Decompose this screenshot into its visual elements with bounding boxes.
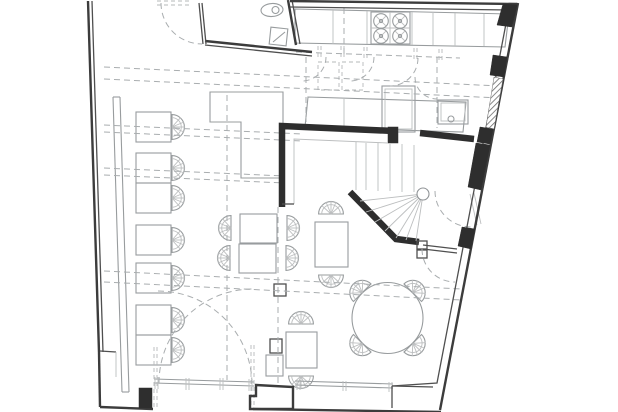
cabinet-swing-arc <box>350 57 374 81</box>
wc-sink <box>269 27 288 46</box>
wall-table <box>136 263 171 293</box>
chair-icon <box>344 335 371 362</box>
chair-icon <box>287 216 300 241</box>
wall-table <box>136 153 171 183</box>
wall-pier <box>139 388 152 408</box>
door-jamb <box>388 127 398 143</box>
kitchen <box>385 89 412 129</box>
window-jamb <box>477 127 493 144</box>
chair-icon <box>172 186 185 211</box>
center-table <box>286 332 317 368</box>
chair-icon <box>344 275 371 302</box>
appliance-outline <box>342 62 363 90</box>
storefront-glazing <box>154 383 254 386</box>
appliance-outline <box>318 62 339 90</box>
beam-line <box>104 168 285 176</box>
beam-line <box>104 79 499 98</box>
exterior-walls <box>99 352 100 407</box>
wall-table <box>136 305 171 335</box>
stair-wall <box>282 126 394 207</box>
storefront <box>154 289 393 410</box>
wall-table <box>136 225 171 255</box>
beam-line <box>104 67 499 86</box>
stair-wall <box>420 133 474 139</box>
wall-pier <box>250 385 293 409</box>
chair-icon <box>404 335 431 362</box>
beam-line <box>104 271 462 289</box>
burner-icon <box>393 14 408 29</box>
center-table <box>315 222 348 267</box>
stair-winder <box>366 194 423 212</box>
column <box>274 284 286 296</box>
beams-grid <box>104 1 499 383</box>
wc-room <box>161 0 312 56</box>
storefront-glazing <box>154 379 254 382</box>
wc-sink <box>273 32 285 42</box>
storefront-glazing <box>295 385 393 388</box>
wall-lining <box>294 139 388 204</box>
seating <box>113 92 431 392</box>
kitchen <box>295 8 509 132</box>
chair-icon <box>286 246 299 271</box>
door-leaf <box>423 249 457 253</box>
wall-table <box>136 183 171 213</box>
wall-table <box>136 112 171 142</box>
chair-icon <box>217 246 230 271</box>
chair-icon <box>172 156 185 181</box>
chair-icon <box>172 338 185 363</box>
chair-icon <box>172 308 185 333</box>
floor-plan <box>0 0 618 412</box>
wall-table <box>136 335 171 365</box>
stair-newel <box>417 188 429 200</box>
toilet-icon <box>272 7 279 14</box>
round-table <box>352 283 423 354</box>
kitchen-sink <box>438 100 468 124</box>
chair-icon <box>172 228 185 253</box>
door-swing-arc <box>435 191 471 227</box>
door-swing-arc <box>161 3 202 44</box>
kitchen <box>441 103 465 121</box>
burner-icon <box>374 29 389 44</box>
chair-icon <box>289 311 314 324</box>
door-swing-arc <box>159 289 253 383</box>
column-base <box>266 355 283 376</box>
exterior-walls <box>440 3 518 410</box>
burner-icon <box>374 14 389 29</box>
chair-icon <box>319 275 344 288</box>
center-table <box>239 244 276 273</box>
burner-icon <box>393 29 408 44</box>
exterior-walls <box>88 1 518 412</box>
column <box>270 339 282 353</box>
window-glazing <box>486 77 503 129</box>
stair <box>282 126 481 282</box>
stair-winder <box>416 194 423 241</box>
chair-icon <box>319 201 344 214</box>
exterior-walls <box>290 1 517 4</box>
beam-line <box>104 175 285 183</box>
cabinet-swing-arc <box>415 77 437 99</box>
window-jamb <box>490 55 507 77</box>
chair-icon <box>218 216 231 241</box>
beam-line <box>104 125 303 134</box>
beam-line <box>104 132 303 141</box>
chair-icon <box>172 266 185 291</box>
bench <box>113 97 122 392</box>
center-table <box>240 214 277 243</box>
bench <box>120 97 129 392</box>
floor-plan-svg <box>0 0 618 412</box>
door-leaf <box>423 245 457 249</box>
bar-counter <box>210 92 283 178</box>
